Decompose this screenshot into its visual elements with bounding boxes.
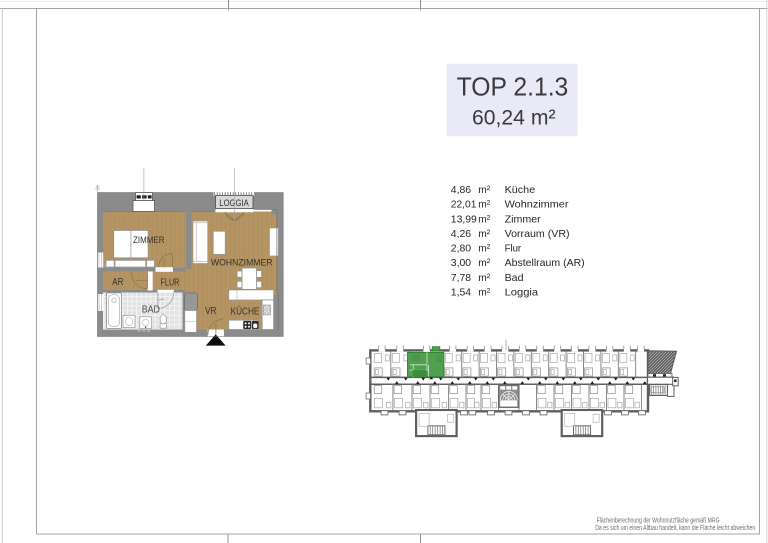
svg-text:WOHNZIMMER: WOHNZIMMER [211, 257, 273, 268]
svg-text:Loggia: Loggia [505, 287, 539, 298]
svg-text:Wohnzimmer: Wohnzimmer [505, 200, 570, 211]
svg-text:m²: m² [478, 185, 490, 196]
svg-text:60,24 m²: 60,24 m² [472, 106, 556, 129]
svg-text:m²: m² [478, 287, 490, 298]
svg-text:AR: AR [112, 277, 123, 288]
svg-text:m²: m² [478, 200, 490, 211]
svg-text:Abstellraum (AR): Abstellraum (AR) [505, 258, 585, 269]
svg-text:m²: m² [478, 258, 490, 269]
svg-text:Vorraum (VR): Vorraum (VR) [505, 229, 570, 240]
svg-text:KÜCHE: KÜCHE [231, 305, 260, 317]
svg-text:FLUR: FLUR [161, 277, 180, 288]
svg-text:m²: m² [478, 244, 490, 255]
svg-text:1,54: 1,54 [451, 287, 472, 298]
svg-text:Zimmer: Zimmer [505, 214, 542, 225]
svg-text:m²: m² [478, 273, 490, 284]
svg-text:Bad: Bad [505, 273, 524, 284]
svg-text:BAD: BAD [142, 304, 161, 316]
svg-text:TOP 2.1.3: TOP 2.1.3 [457, 72, 569, 102]
svg-text:VR: VR [205, 306, 217, 317]
svg-text:22,01: 22,01 [451, 200, 477, 211]
svg-text:7,78: 7,78 [451, 273, 472, 284]
svg-text:Flur: Flur [505, 244, 522, 255]
svg-text:13,99: 13,99 [451, 214, 477, 225]
svg-text:4,26: 4,26 [451, 229, 472, 240]
svg-text:Flächenberechnung der Wohnnutz: Flächenberechnung der Wohnnutzfläche gem… [597, 518, 720, 525]
svg-text:m²: m² [478, 229, 490, 240]
svg-text:ZIMMER: ZIMMER [133, 235, 165, 246]
svg-text:4,86: 4,86 [451, 185, 472, 196]
svg-text:2,80: 2,80 [451, 244, 472, 255]
svg-text:3,00: 3,00 [451, 258, 472, 269]
svg-text:Da es sich um einen Altbau han: Da es sich um einen Altbau handelt, kann… [595, 525, 755, 532]
svg-text:m²: m² [478, 214, 490, 225]
svg-text:Küche: Küche [505, 185, 536, 196]
